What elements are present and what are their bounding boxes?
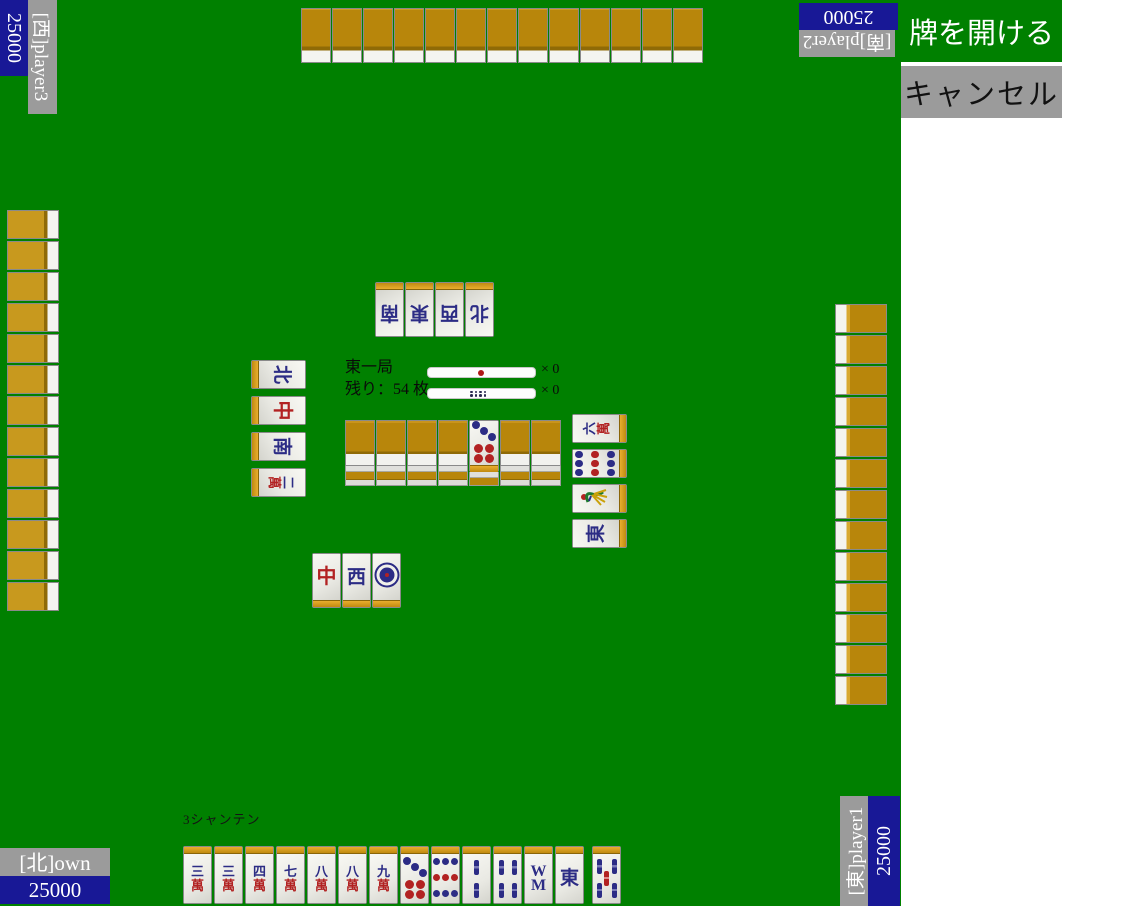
hidden-tile-back [7,489,59,518]
hidden-tile-back [7,427,59,456]
hidden-tile-back [425,8,455,63]
honba-stick-dots [470,391,486,397]
hidden-tile-back [642,8,672,63]
drawn-tile-5s[interactable] [592,846,621,904]
west-player-discards: 北中南二萬 [250,358,307,499]
hidden-tile-back [835,397,887,426]
tiles-remaining-indicator: 残り：54 枚 [345,382,429,398]
tile-8m[interactable]: 八萬 [338,846,367,904]
south-player-label: [南]player2 [799,30,895,57]
hidden-tile-back [7,210,59,239]
hidden-tile-back [835,428,887,457]
cancel-button[interactable]: キャンセル [901,66,1062,118]
wall-stack [376,420,406,486]
honba-stick-icon [427,388,536,399]
shanten-status: 3シャンテン [183,809,261,828]
hidden-tile-back [835,459,887,488]
hidden-tile-back [301,8,331,63]
hidden-tile-back [7,582,59,611]
tile-E: 東 [405,282,434,337]
hidden-tile-back [7,241,59,270]
tile-1s [572,484,627,513]
wall-lower-tile [531,466,561,486]
discard-slot: 二萬 [250,466,307,499]
wall-lower-tile [345,466,375,486]
east-player-hidden-hand [835,304,887,705]
hidden-tile-back [835,583,887,612]
tile-1p [372,553,401,608]
wall-tile-back [376,420,406,466]
tile-9p[interactable] [431,846,460,904]
east-player-score: 25000 [868,796,900,906]
discard-slot [571,482,628,515]
tile-4m[interactable]: 四萬 [245,846,274,904]
own-hand: 三萬三萬四萬七萬八萬八萬九萬WM東 [183,846,621,904]
wall-lower-tile [407,466,437,486]
hidden-tile-back [7,396,59,425]
hidden-tile-back [835,335,887,364]
south-player-hidden-hand [301,8,703,63]
tile-3m[interactable]: 三萬 [214,846,243,904]
discard-slot: 六萬 [571,412,628,445]
tile-N: 北 [465,282,494,337]
tile-E: 東 [572,519,627,548]
wall-tile-back [438,420,468,466]
hidden-tile-back [7,303,59,332]
wall-stack [345,420,375,486]
tile-6m: 六萬 [572,414,627,443]
hidden-tile-back [456,8,486,63]
discard-slot: 北 [250,358,307,391]
tile-S: 南 [375,282,404,337]
tile-3m[interactable]: 三萬 [183,846,212,904]
tile-C: 中 [312,553,341,608]
east-player-label: [東]player1 [840,796,868,906]
tile-7p[interactable] [400,846,429,904]
tile-7m[interactable]: 七萬 [276,846,305,904]
tile-W: 西 [435,282,464,337]
hidden-tile-back [835,490,887,519]
wall-lower-tile [438,466,468,486]
open-tiles-button[interactable]: 牌を開ける [901,0,1062,62]
mahjong-game-screen: 25000 [西]player3 25000 [南]player2 [北]own… [0,0,1140,906]
wall-stack-dora [469,420,499,486]
hidden-tile-back [673,8,703,63]
hidden-tile-back [580,8,610,63]
wall-stack [438,420,468,486]
tile-8m[interactable]: 八萬 [307,846,336,904]
tile-W: 西 [342,553,371,608]
wall-lower-tile [469,472,499,486]
wall-tile-back [531,420,561,466]
tile-N: 北 [251,360,306,389]
hidden-tile-back [7,365,59,394]
riichi-stick-count: × 0 [541,362,559,378]
discard-slot: 中 [250,394,307,427]
tile-2m: 二萬 [251,468,306,497]
hidden-tile-back [549,8,579,63]
tile-9p [572,449,627,478]
discard-slot: 東 [571,517,628,550]
hidden-tile-back [518,8,548,63]
west-player-hidden-hand [7,210,59,611]
honba-stick-count: × 0 [541,383,559,399]
wall-stack [500,420,530,486]
tile-8s[interactable]: WM [524,846,553,904]
hidden-tile-back [835,614,887,643]
east-player-discards: 六萬 東 [571,412,628,550]
hidden-tile-back [835,645,887,674]
hidden-tile-back [7,458,59,487]
discard-slot: 南 [250,430,307,463]
west-player-label: [西]player3 [28,0,57,114]
hidden-tile-back [363,8,393,63]
hidden-tile-back [394,8,424,63]
riichi-stick-dot [478,370,484,376]
discard-slot [571,447,628,480]
hidden-tile-back [835,304,887,333]
hidden-tile-back [835,552,887,581]
tile-C: 中 [251,396,306,425]
own-player-label: [北]own [0,848,110,876]
tile-S: 南 [251,432,306,461]
dora-indicator-7p [469,420,499,472]
hidden-tile-back [7,551,59,580]
hidden-tile-back [835,676,887,705]
tile-9m[interactable]: 九萬 [369,846,398,904]
hidden-tile-back [611,8,641,63]
hidden-tile-back [7,520,59,549]
tile-2s[interactable] [462,846,491,904]
hidden-tile-back [835,366,887,395]
hidden-tile-back [332,8,362,63]
wall-tile-back [500,420,530,466]
own-player-score: 25000 [0,876,110,904]
wall-tile-back [407,420,437,466]
wall-tile-back [345,420,375,466]
tile-4s[interactable] [493,846,522,904]
tile-E[interactable]: 東 [555,846,584,904]
hidden-tile-back [487,8,517,63]
dead-wall [345,420,561,486]
hidden-tile-back [7,272,59,301]
wall-lower-tile [376,466,406,486]
hidden-tile-back [7,334,59,363]
wall-stack [407,420,437,486]
round-indicator: 東一局 [345,360,393,376]
wall-lower-tile [500,466,530,486]
south-player-score: 25000 [799,3,898,30]
south-player-discards: 南東西北 [375,282,494,337]
hidden-tile-back [835,521,887,550]
west-player-score: 25000 [0,0,28,76]
own-discards: 中西 [312,553,401,608]
riichi-stick-icon [427,367,536,378]
wall-stack [531,420,561,486]
